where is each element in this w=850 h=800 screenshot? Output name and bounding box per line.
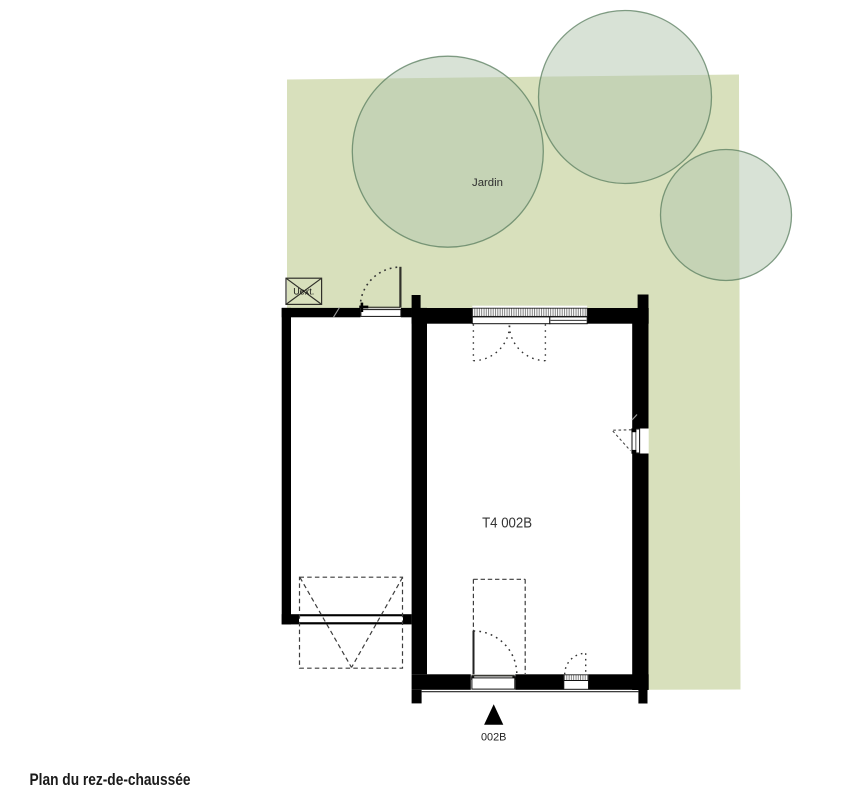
svg-text:T4 002B: T4 002B (482, 516, 532, 532)
svg-text:Jardin: Jardin (472, 177, 503, 189)
svg-text:Uext.: Uext. (293, 287, 314, 297)
svg-text:Plan du rez-de-chaussée: Plan du rez-de-chaussée (30, 771, 191, 789)
svg-text:002B: 002B (481, 732, 506, 744)
